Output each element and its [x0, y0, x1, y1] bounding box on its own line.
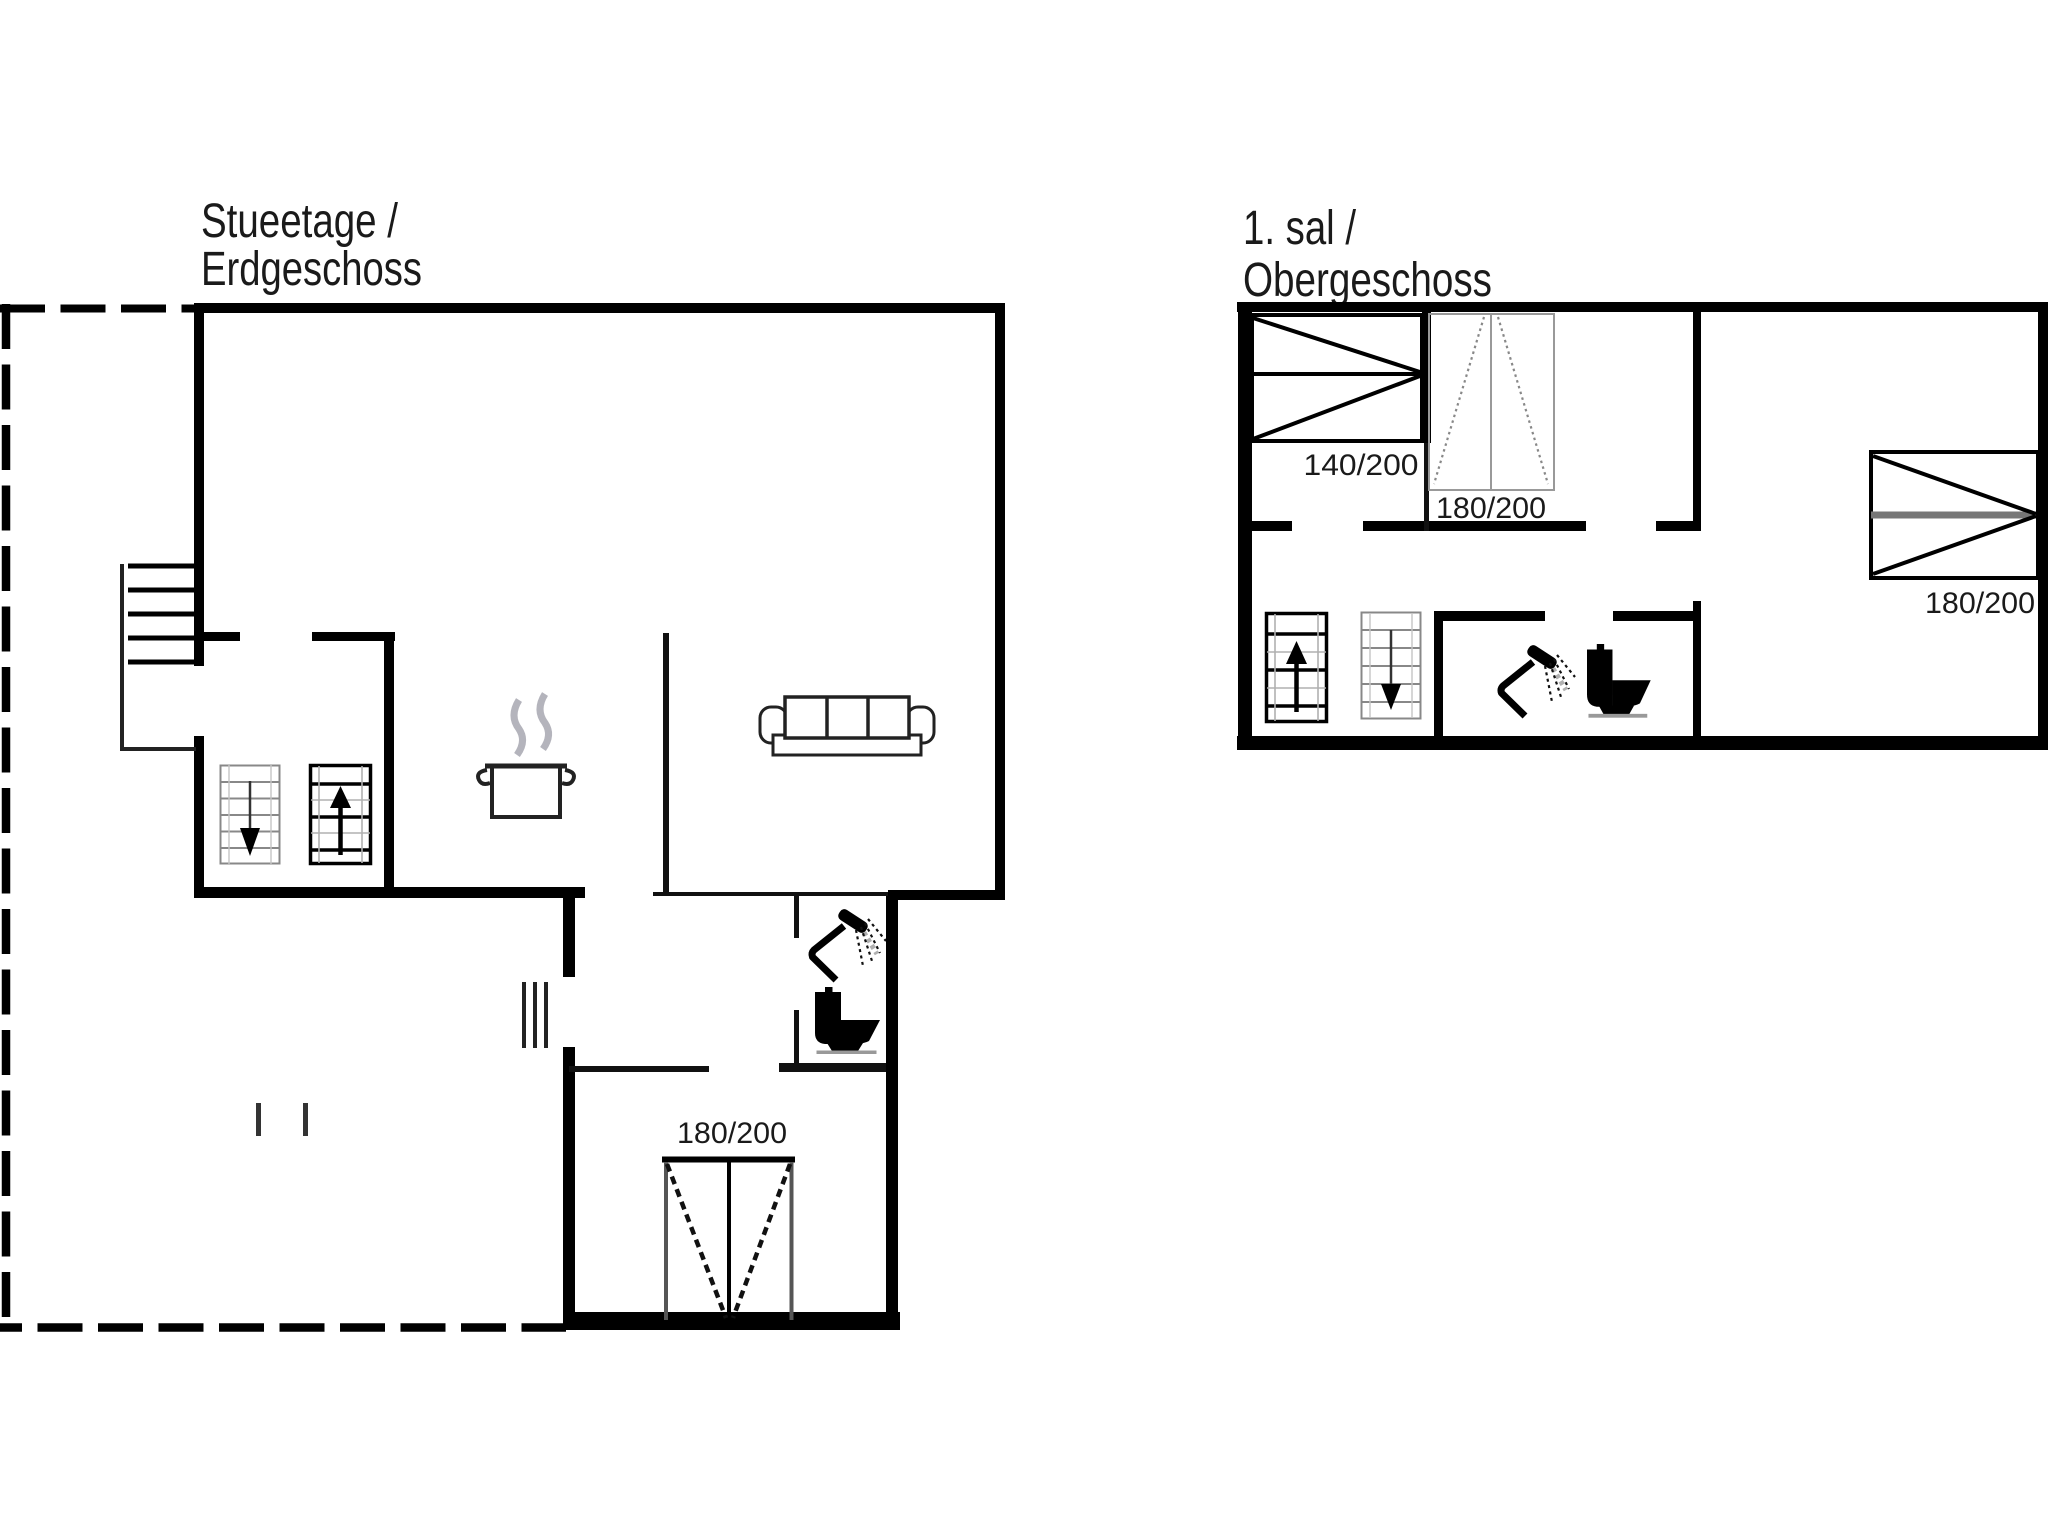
svg-text:180/200: 180/200 [1925, 587, 2035, 620]
svg-text:180/200: 180/200 [677, 1117, 787, 1150]
svg-text:180/200: 180/200 [1436, 492, 1546, 525]
svg-text:Obergeschoss: Obergeschoss [1243, 254, 1492, 307]
svg-text:140/200: 140/200 [1304, 449, 1419, 482]
svg-text:Erdgeschoss: Erdgeschoss [201, 243, 422, 296]
svg-text:1. sal /: 1. sal / [1243, 202, 1357, 255]
svg-text:Stueetage /: Stueetage / [201, 195, 399, 248]
